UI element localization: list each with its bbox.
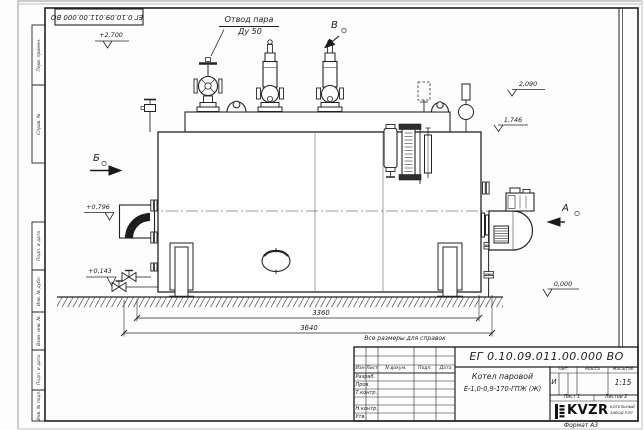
- titleblock-scale-label: Масштаб: [608, 368, 638, 372]
- company-name-line1: КОТЕЛЬНЫЙ: [610, 405, 635, 409]
- company-logo-text: KVZR: [567, 404, 609, 417]
- titleblock-col-izm: Изм: [354, 367, 366, 372]
- view-arrow-v: [325, 28, 346, 47]
- titleblock-mass-label: Масса: [577, 368, 608, 373]
- elevation-left-upper-label: +0,796: [81, 204, 115, 210]
- titleblock-doc-number: ЕГ 0.10.09.011.00.000 ВО: [457, 351, 636, 362]
- margin-stamp-sprav-no: Справ. №: [34, 85, 46, 163]
- vent-stub: [418, 82, 430, 112]
- dimension-3360-label: 3360: [301, 310, 341, 317]
- margin-stamp-podp-data-2: Подп. и дата: [34, 350, 46, 390]
- elevation-left-lower-label: +0,143: [83, 268, 117, 274]
- margin-stamp-perv-primen: Перв. примен.: [34, 25, 46, 85]
- titleblock-col-ndoc: N докум.: [378, 367, 414, 372]
- margin-stamp-vzam-inv: Взам. инв. №: [34, 312, 46, 350]
- callout-leader-line: [211, 30, 224, 57]
- steam-outlet-callout-line2: Ду 50: [230, 28, 270, 36]
- smoke-duct-elbow: [120, 200, 158, 271]
- titleblock-product-model: Е-1,0-0,9-170-ГПЖ (Ж): [456, 386, 549, 393]
- front-top-valve: [141, 100, 156, 133]
- burner: [482, 188, 535, 250]
- pressure-gauge-siphon: [459, 84, 474, 132]
- titleblock-col-data: Дата: [436, 367, 455, 372]
- margin-stamp-podp-data-1: Подп. и дата: [34, 222, 46, 270]
- titleblock-col-podp: Подп.: [414, 367, 436, 372]
- steam-outlet-valve: [194, 58, 222, 112]
- titleblock-row-razrab: Разраб.: [356, 375, 376, 380]
- titleblock-product-name: Котел паровой: [457, 373, 548, 381]
- format-note: Формат А3: [558, 423, 604, 429]
- titleblock-sheet-number: Лист 1: [550, 396, 594, 401]
- elevation-right-lower-label: 1,746: [496, 117, 530, 123]
- titleblock-scale-value: 1:15: [608, 379, 638, 387]
- titleblock-lit-value: И: [549, 379, 559, 386]
- titleblock-row-utv: Утв.: [356, 415, 367, 420]
- elevation-right-upper-label: 2,090: [511, 81, 545, 87]
- titleblock-row-nkontr: Н.контр.: [356, 407, 378, 412]
- titleblock-col-list: Лист: [366, 367, 378, 372]
- drain-valves: [112, 271, 158, 292]
- titleblock-lit-label: Лит.: [550, 368, 577, 373]
- dimension-3640-label: 3640: [289, 325, 329, 332]
- margin-stamp-inv-dubl: Инв. № дубл.: [34, 270, 46, 312]
- view-label-a: А: [562, 204, 569, 214]
- safety-valve-2: [317, 40, 344, 112]
- view-label-v: В: [331, 21, 338, 31]
- steam-outlet-callout-line1: Отвод пара: [219, 16, 279, 27]
- corner-doc-number-stamp: ЕГ 0.10.09.011.00.000 ВО: [55, 13, 143, 20]
- elevation-ground-label: 0,000: [546, 281, 580, 287]
- boiler-drawing-canvas: [0, 0, 644, 430]
- view-label-b: Б: [93, 154, 100, 164]
- titleblock-row-tkontr: Т.контр.: [356, 391, 378, 396]
- reference-note: Все размеры для справок: [357, 336, 453, 342]
- elevation-top-label: +2,700: [92, 32, 130, 38]
- safety-valve-1: [257, 40, 284, 112]
- company-name-line2: ЗАВОД РЭП: [610, 411, 633, 415]
- margin-stamp-inv-podl: Инв. № подл.: [34, 390, 46, 421]
- company-logo-icon: [555, 404, 565, 419]
- titleblock-sheet-count: Листов 2: [594, 396, 638, 401]
- drawing-sheet: ЕГ 0.10.09.011.00.000 ВО Перв. примен. С…: [0, 0, 644, 430]
- titleblock-row-prov: Пров.: [356, 383, 371, 388]
